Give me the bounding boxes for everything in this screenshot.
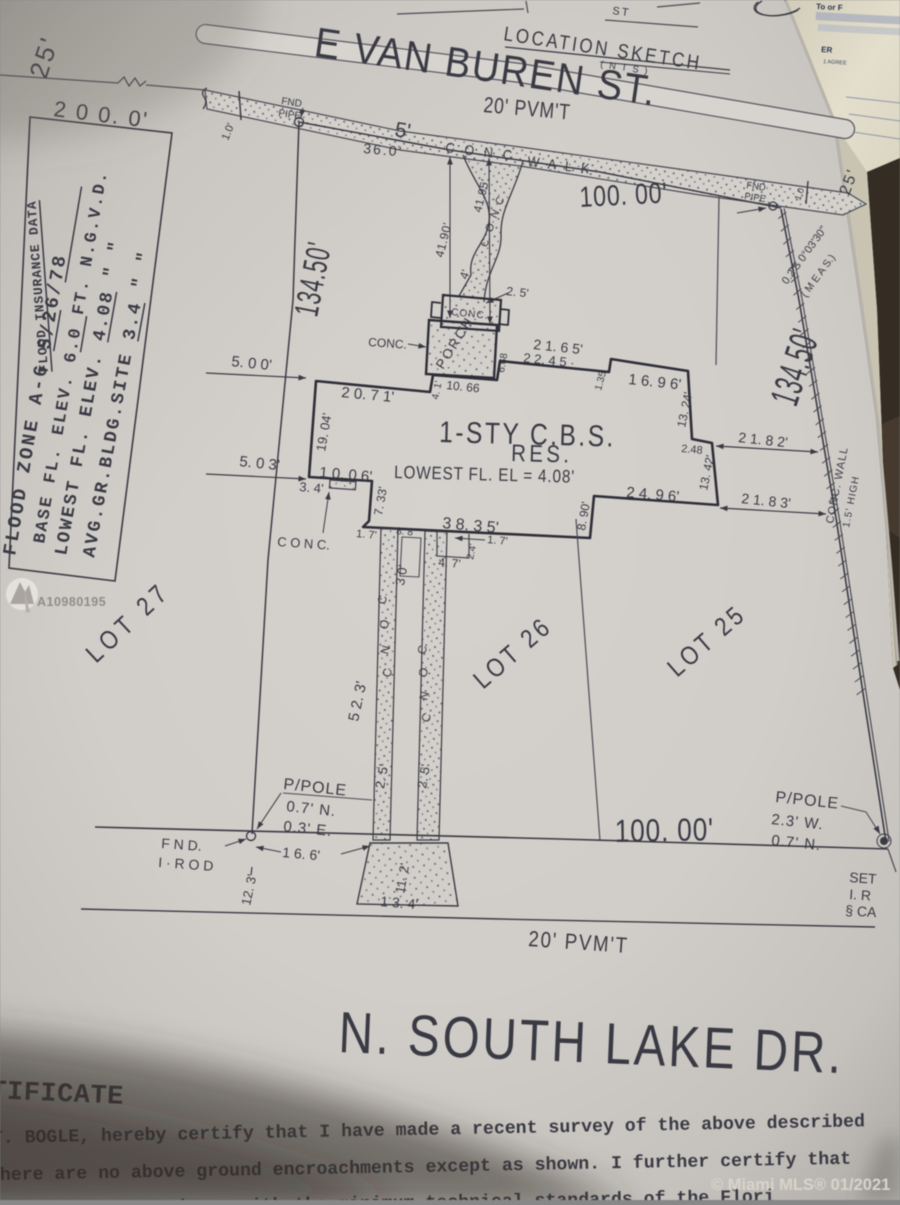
- svg-text:3. 4': 3. 4': [299, 479, 324, 496]
- svg-text:2.48: 2.48: [681, 443, 703, 457]
- svg-text:§ CA: § CA: [845, 902, 878, 920]
- svg-text:F N D.: F N D.: [161, 835, 202, 854]
- svg-text:ST: ST: [612, 5, 632, 19]
- svg-text:1 3. 4': 1 3. 4': [380, 893, 419, 912]
- svg-text:CONC.: CONC.: [368, 335, 408, 352]
- svg-text:1. 7': 1. 7': [356, 528, 377, 542]
- svg-text:1 6. 6': 1 6. 6': [282, 844, 321, 863]
- svg-text:SET: SET: [849, 869, 878, 887]
- svg-text:2. 5': 2. 5': [506, 284, 530, 300]
- svg-text:100. 00': 100. 00': [579, 176, 669, 214]
- svg-text:To or F: To or F: [816, 2, 843, 12]
- svg-text:© Miami MLS® 01/2021: © Miami MLS® 01/2021: [711, 1176, 890, 1194]
- svg-text:RES.: RES.: [511, 439, 573, 468]
- svg-text:I. R: I. R: [849, 886, 872, 903]
- svg-text:100. 00': 100. 00': [615, 813, 715, 850]
- svg-text:A10980195: A10980195: [37, 595, 106, 609]
- svg-text:1. 7': 1. 7': [487, 534, 508, 548]
- svg-text:ER: ER: [821, 45, 833, 55]
